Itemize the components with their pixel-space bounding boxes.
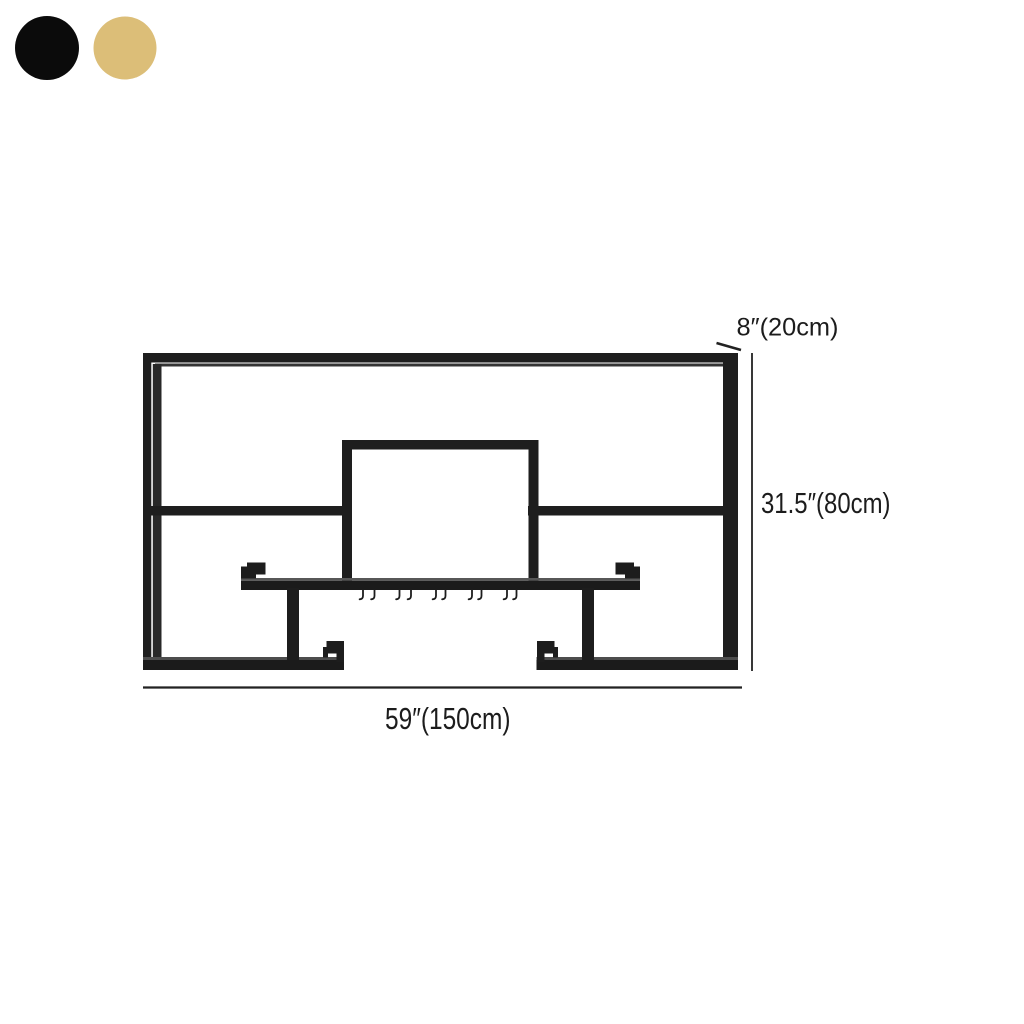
svg-text:59″(150cm): 59″(150cm): [385, 701, 511, 736]
svg-text:8″(20cm): 8″(20cm): [737, 314, 839, 342]
svg-text:31.5″(80cm): 31.5″(80cm): [761, 488, 891, 520]
